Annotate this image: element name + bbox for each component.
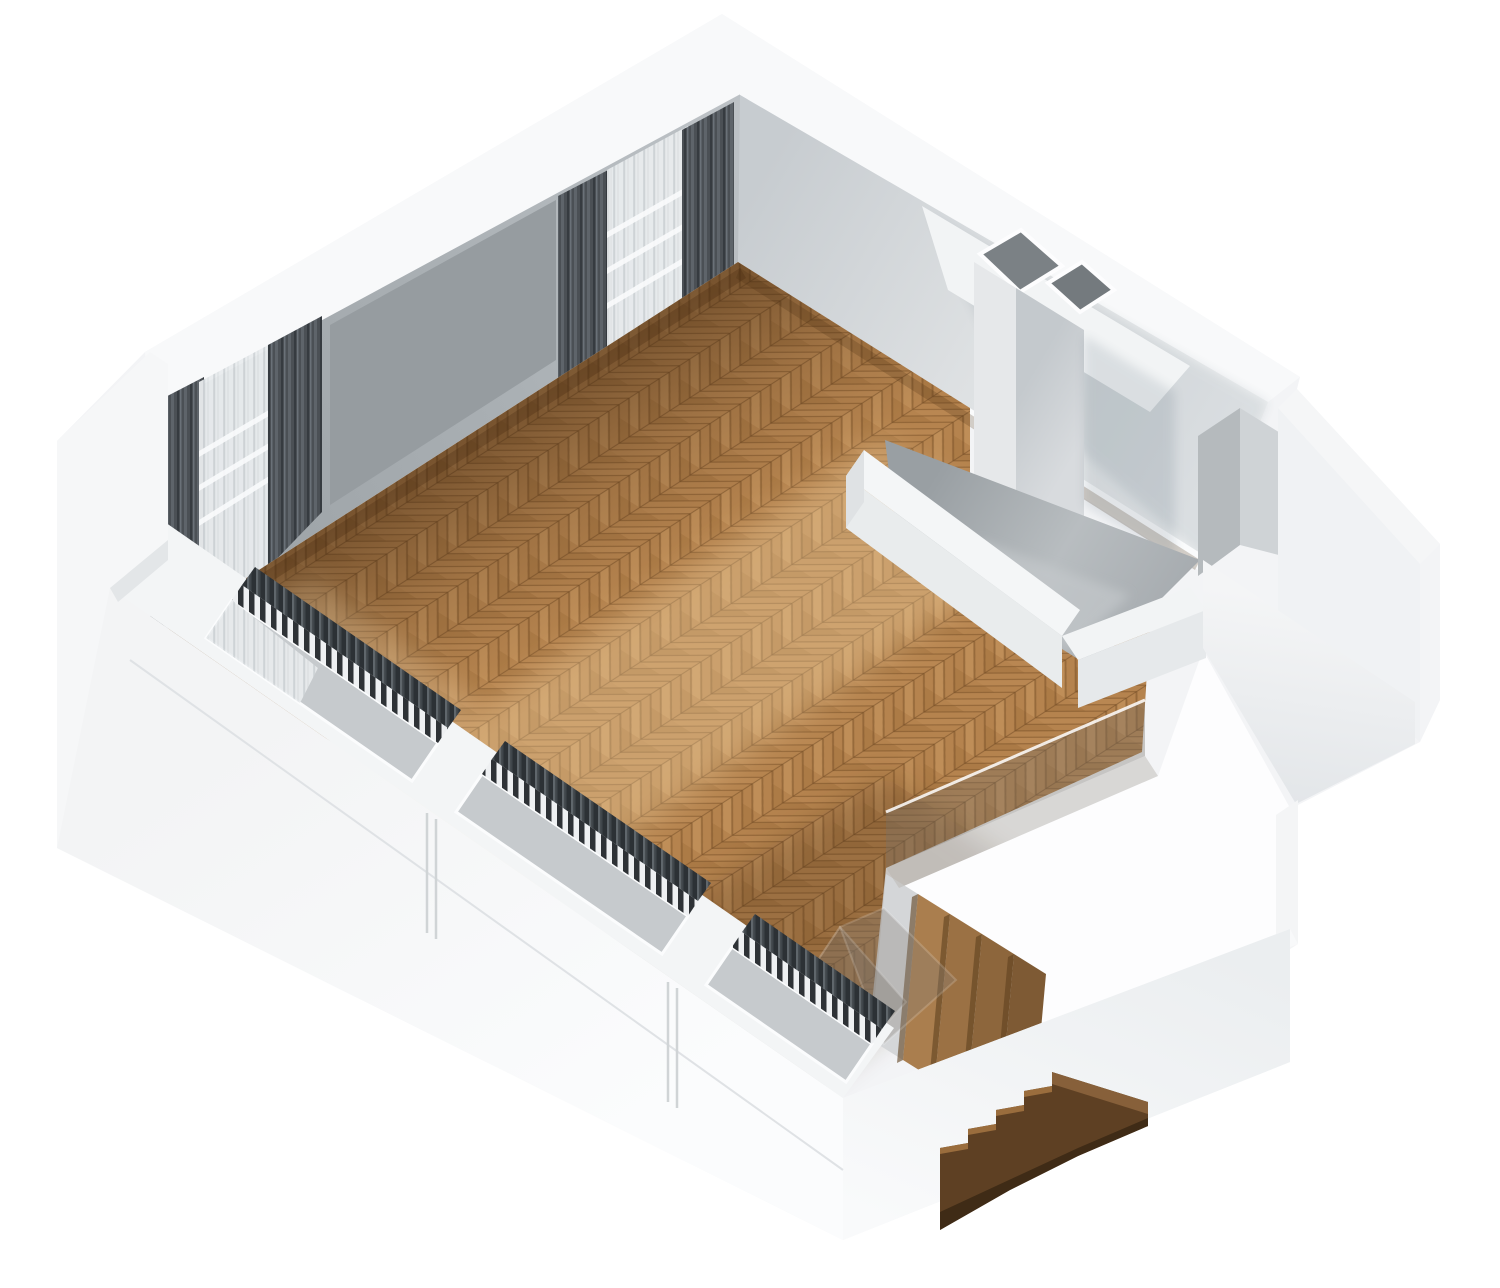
floorplan-3d-render	[0, 0, 1500, 1288]
floorplan-3d-viewport[interactable]	[0, 0, 1500, 1288]
